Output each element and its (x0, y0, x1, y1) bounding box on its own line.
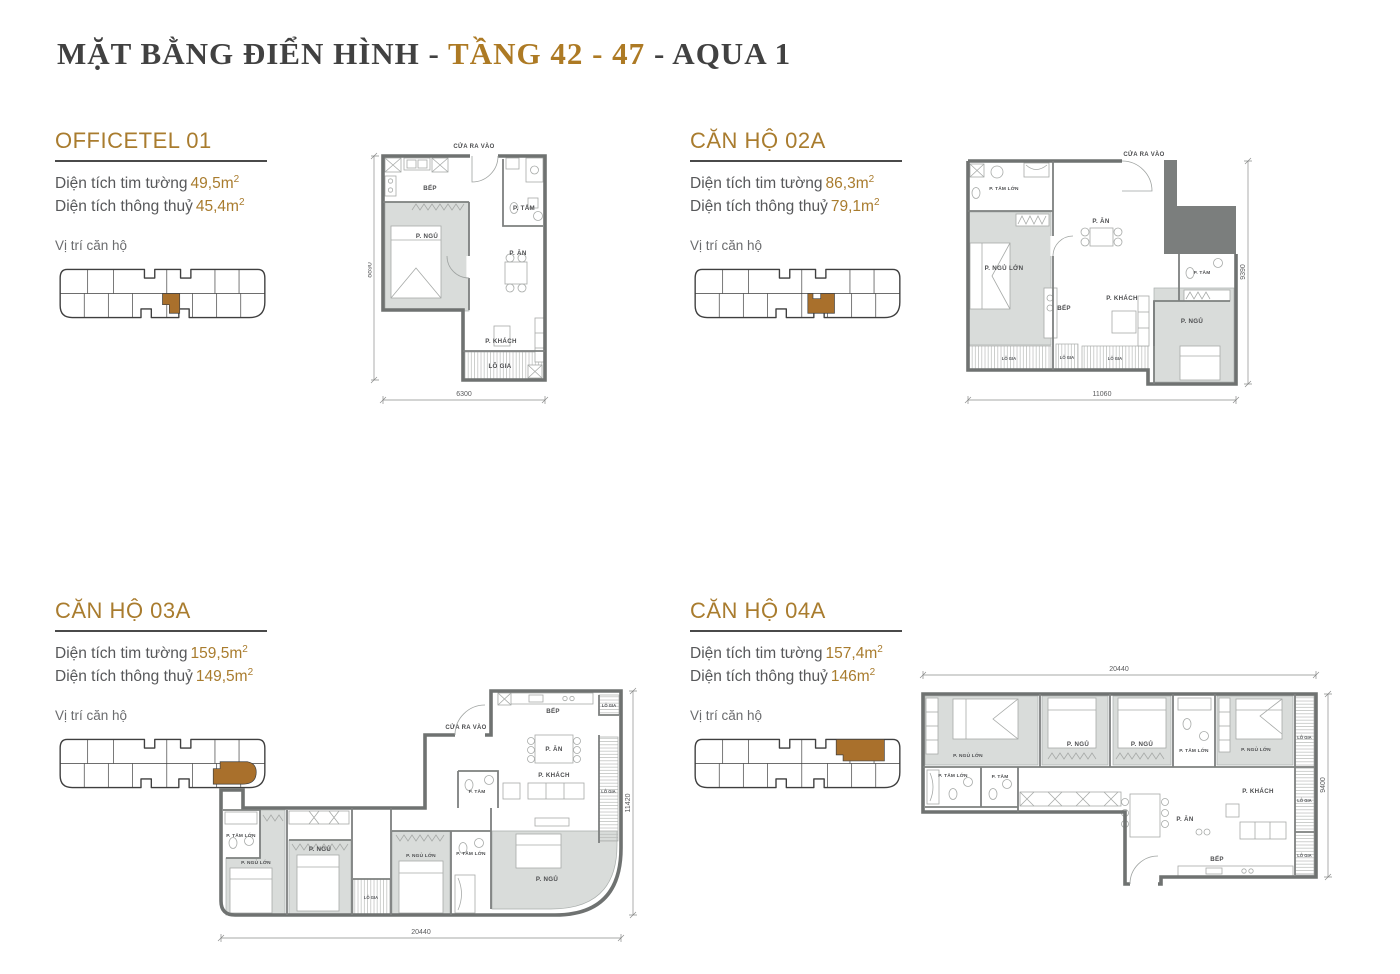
title-underline (690, 160, 902, 162)
sofa (528, 783, 584, 799)
bed (297, 855, 339, 911)
room-label-living: P. KHÁCH (1242, 788, 1274, 795)
location-diagram (690, 729, 905, 798)
unit-title: CĂN HỘ 02A (690, 128, 906, 154)
room-label-loggia-2: LÔ GIA (1297, 798, 1311, 803)
unit-location-highlight (808, 294, 835, 314)
page-title: MẶT BẰNG ĐIỂN HÌNH - TẦNG 42 - 47 - AQUA… (57, 36, 791, 72)
room-label-loggia-3: LÔ GIA (1108, 356, 1122, 361)
area-clear-line: Diện tích thông thuỷ146m2 (690, 663, 906, 686)
room-label-kitchen: BẾP (546, 708, 560, 715)
room-label-living: P. KHÁCH (485, 338, 517, 345)
room-label-bedroom: P. NGỦ (416, 233, 439, 240)
unit-card-04a: CĂN HỘ 04A Diện tích tim tường157,4m2 Di… (690, 598, 906, 798)
room-label-loggia-1: LÔ GIA (1297, 735, 1311, 740)
room-label-loggia-right: LÔ GIA (601, 789, 615, 794)
room-label-living: P. KHÁCH (1106, 295, 1138, 302)
bed (399, 861, 443, 913)
room-label-master-bedroom: P. NGỦ LỚN (985, 264, 1024, 272)
sofa (1138, 296, 1149, 346)
location-caption: Vị trí căn hộ (690, 708, 906, 723)
floor-plan-02a: CỬA RA VÀO P. TẮM LỚN P. NGỦ LỚN P. ĂN B… (952, 148, 1256, 416)
title-underline (55, 160, 267, 162)
unit-card-officetel-01: OFFICETEL 01 Diện tích tim tường49,5m2 D… (55, 128, 271, 328)
bed (953, 699, 1018, 739)
room-label-living: P. KHÁCH (538, 772, 570, 779)
floor-plan-04a: P. NGỦ LỚN P. NGỦ P. NGỦ P. TẮM LỚN P. N… (908, 652, 1350, 904)
room-label-bath-large-top: P. TẮM LỚN (1179, 746, 1209, 754)
room-label-bedroom-1: P. NGỦ (309, 846, 332, 853)
room-label-bath-large-1: P. TẮM LỚN (226, 831, 256, 839)
sofa (535, 318, 544, 362)
dim-width: 6300 (456, 391, 472, 398)
entrance-door (1122, 161, 1152, 191)
page-title-suffix: - AQUA 1 (645, 36, 791, 71)
bed (1180, 346, 1220, 380)
entrance-label: CỬA RA VÀO (1123, 151, 1164, 158)
unit-title: CĂN HỘ 03A (55, 598, 271, 624)
room-label-dining: P. ĂN (1092, 218, 1109, 225)
area-wall-line: Diện tích tim tường157,4m2 (690, 640, 906, 663)
floorplan-sheet: { "page": { "title_prefix": "MẶT BẰNG ĐI… (0, 0, 1400, 974)
room-label-loggia: LÔ GIA (488, 362, 511, 370)
unit-card-02a: CĂN HỘ 02A Diện tích tim tường86,3m2 Diệ… (690, 128, 906, 328)
unit-title: OFFICETEL 01 (55, 128, 271, 154)
location-diagram (690, 259, 905, 328)
bed (516, 834, 561, 868)
unit-location-highlight (836, 740, 884, 762)
room-label-bedroom: P. NGỦ (1181, 318, 1204, 325)
location-caption: Vị trí căn hộ (690, 238, 906, 253)
entrance-door (472, 156, 498, 182)
area-block: Diện tích tim tường159,5m2 Diện tích thô… (55, 640, 271, 686)
room-label-dining: P. ĂN (1176, 816, 1193, 823)
bed (970, 243, 1010, 309)
sofa (1240, 822, 1286, 839)
room-label-kitchen: BẾP (423, 185, 437, 192)
area-block: Diện tích tim tường49,5m2 Diện tích thôn… (55, 170, 271, 216)
area-wall-line: Diện tích tim tường49,5m2 (55, 170, 271, 193)
dim-height: 11420 (625, 793, 632, 812)
dim-height: 8890 (368, 262, 374, 278)
area-wall-line: Diện tích tim tường159,5m2 (55, 640, 271, 663)
area-block: Diện tích tim tường157,4m2 Diện tích thô… (690, 640, 906, 686)
room-label-loggia-1: LÔ GIA (1002, 356, 1016, 361)
room-label-dining: P. ĂN (509, 250, 526, 257)
room-label-bedroom-1: P. NGỦ (1067, 741, 1090, 748)
title-underline (55, 630, 267, 632)
entrance-label: CỬA RA VÀO (445, 724, 486, 731)
entrance-door (1130, 856, 1158, 884)
room-label-bath: P. TẮM (513, 204, 535, 212)
dim-height: 9400 (1320, 777, 1327, 793)
dim-width: 20440 (1109, 666, 1129, 673)
bed (230, 868, 272, 913)
location-caption: Vị trí căn hộ (55, 238, 271, 253)
room-label-loggia-top: LÔ GIA (602, 703, 616, 708)
room-label-bath: P. TẮM (1194, 268, 1211, 276)
room-label-loggia-mid: LÔ GIA (364, 895, 378, 900)
room-label-bath-large: P. TẮM LỚN (989, 184, 1019, 192)
room-label-kitchen: BẾP (1210, 856, 1224, 863)
room-label-bedroom-2: P. NGỦ (536, 876, 559, 883)
location-diagram (55, 259, 270, 328)
room-label-bath-large: P. TẮM LỚN (938, 771, 968, 779)
bed (1236, 699, 1282, 739)
area-clear-line: Diện tích thông thuỷ45,4m2 (55, 193, 271, 216)
area-block: Diện tích tim tường86,3m2 Diện tích thôn… (690, 170, 906, 216)
title-underline (690, 630, 902, 632)
room-label-kitchen: BẾP (1057, 305, 1071, 312)
room-label-dining: P. ĂN (545, 746, 562, 753)
room-label-loggia-2: LÔ GIA (1060, 355, 1074, 360)
entrance-label: CỬA RA VÀO (453, 143, 494, 150)
unit-title: CĂN HỘ 04A (690, 598, 906, 624)
page-title-prefix: MẶT BẰNG ĐIỂN HÌNH - (57, 36, 448, 71)
core-wall (1164, 160, 1236, 254)
area-wall-line: Diện tích tim tường86,3m2 (690, 170, 906, 193)
floor-plan-officetel-01: CỬA RA VÀO BẾP P. TẮM P. NGỦ P. ĂN P. KH… (368, 138, 576, 416)
dim-width: 20440 (411, 929, 431, 936)
floor-plan-03a: CỬA RA VÀO BẾP LÔ GIA P. ĂN P. KHÁCH LÔ … (213, 683, 655, 965)
area-clear-line: Diện tích thông thuỷ79,1m2 (690, 193, 906, 216)
dim-height: 9390 (1240, 264, 1247, 280)
page-title-floors: TẦNG 42 - 47 (448, 36, 645, 71)
room-label-bath: P. TẮM (992, 772, 1009, 780)
room-label-bedroom-2: P. NGỦ (1131, 741, 1154, 748)
room-label-loggia-3: LÔ GIA (1297, 853, 1311, 858)
dim-width: 11060 (1093, 391, 1112, 398)
